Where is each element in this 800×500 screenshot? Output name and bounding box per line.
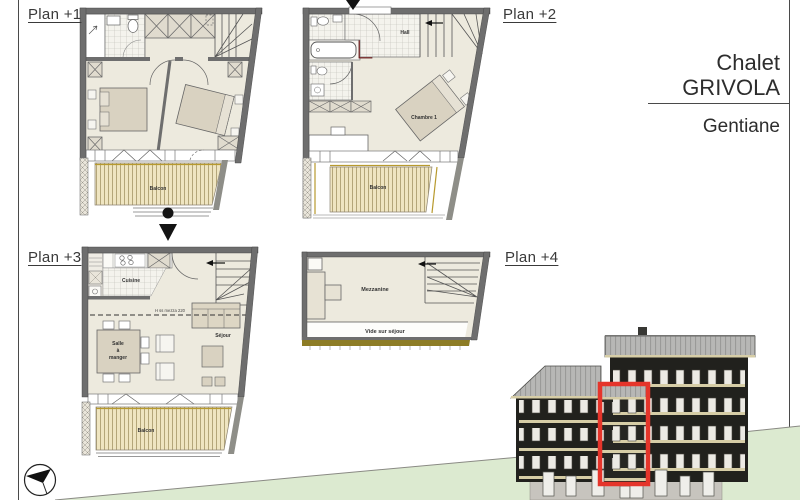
plan3-balcony-label: Balcon: [138, 428, 155, 434]
plan2-hall-label: Hall: [400, 30, 410, 36]
plan1-floor-plan: Balcon: [78, 2, 264, 225]
plan2-floor-plan: Hall Chambre 1: [300, 0, 496, 225]
project-name: Gentiane: [703, 116, 780, 138]
title-block-divider: [648, 103, 789, 104]
plan4-void-label: Vide sur séjour: [365, 329, 405, 335]
plan4-floor-plan: Mezzanine Vide sur séjour: [298, 248, 496, 350]
plan1-balcony-label: Balcon: [150, 186, 167, 192]
plan1-label: Plan +1: [28, 6, 81, 23]
plan3-window-band: [88, 394, 238, 404]
plan2-balcony: Balcon: [303, 158, 445, 218]
plan3-label: Plan +3: [28, 249, 81, 266]
plan2-bedroom-label: Chambre 1: [411, 115, 437, 121]
chalet-title-line2: GRIVOLA: [682, 75, 780, 100]
plan4-label: Plan +4: [505, 249, 558, 266]
plan1-wardrobes: [145, 14, 215, 38]
plan2-balcony-label: Balcon: [370, 185, 387, 191]
plan4-mezzanine-label: Mezzanine: [361, 287, 389, 293]
entrance-arrow-icon: [159, 208, 177, 242]
bathtub: [311, 42, 356, 58]
plan3-balcony: Balcon: [82, 402, 232, 457]
plan2-label: Plan +2: [503, 6, 556, 23]
plan3-dining-label-1: Salle: [112, 341, 124, 347]
plan1-window-band: [86, 150, 235, 161]
plan4-base-strip: [302, 340, 470, 346]
mezzanine-height-note: H ss mezza 220: [155, 308, 186, 313]
plan3-dining-label-3: manger: [109, 355, 127, 361]
north-arrow-icon: [22, 462, 60, 500]
plan2-wardrobes: [309, 101, 371, 112]
building-elevation: [505, 325, 800, 500]
drawing-sheet: Balcon Hall: [0, 0, 800, 500]
plan3-living-label: Séjour: [215, 333, 231, 339]
plan2-window-band: [309, 151, 458, 162]
title-block: Chalet GRIVOLA: [682, 50, 780, 100]
plan3-kitchen-label: Cuisine: [122, 278, 140, 284]
chalet-title-line1: Chalet: [682, 50, 780, 75]
plan3-dining-label-2: à: [117, 348, 120, 354]
plan3-floor-plan: Cuisine: [78, 205, 264, 465]
